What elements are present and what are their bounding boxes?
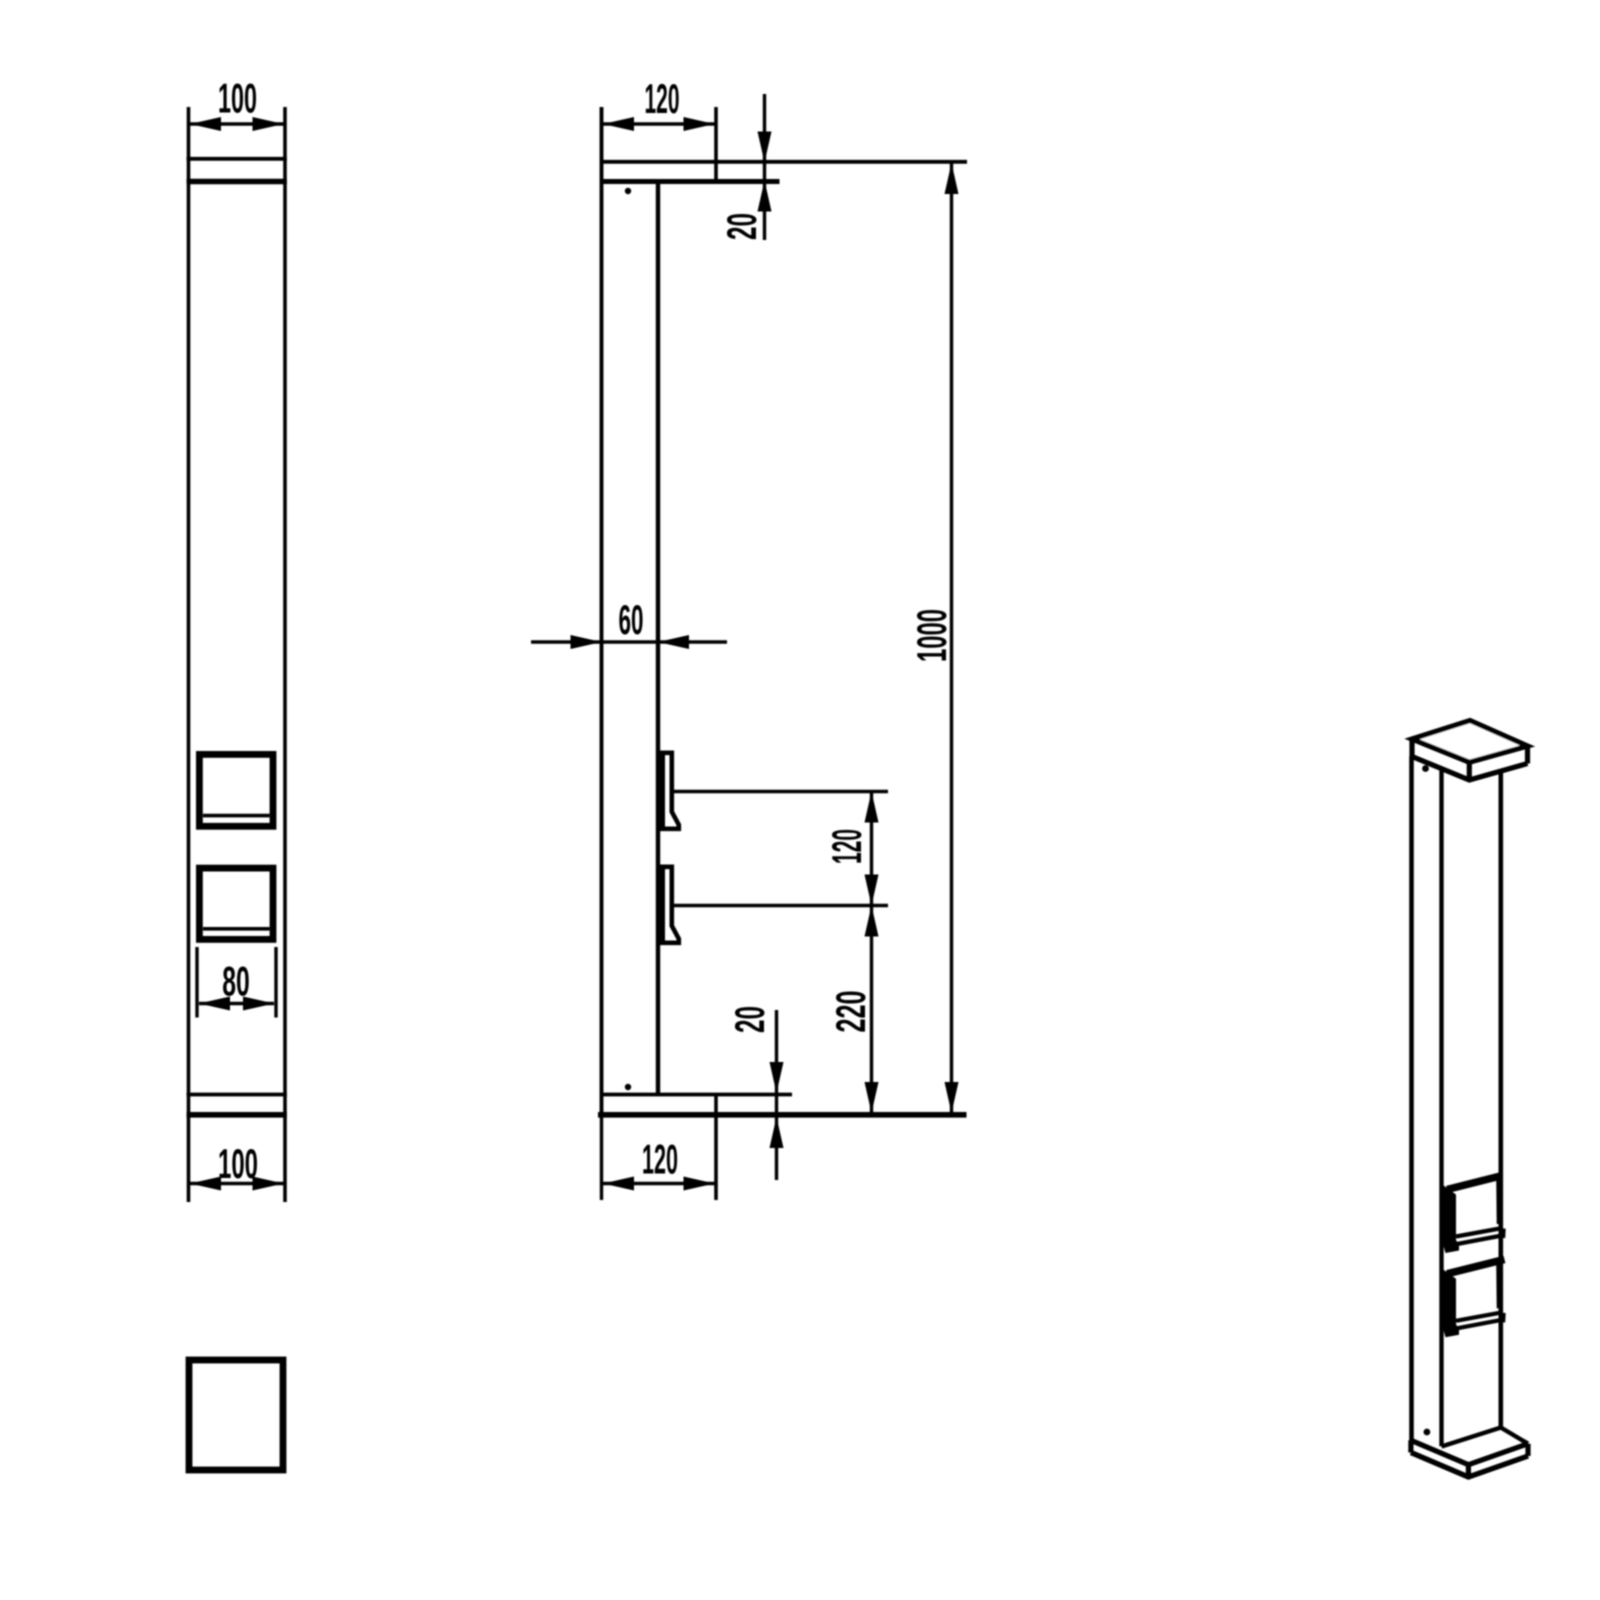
svg-text:60: 60 xyxy=(619,598,644,644)
svg-text:20: 20 xyxy=(719,213,766,240)
svg-text:120: 120 xyxy=(824,829,871,864)
svg-text:100: 100 xyxy=(218,1141,258,1188)
svg-text:100: 100 xyxy=(218,75,257,122)
svg-text:120: 120 xyxy=(644,76,679,123)
svg-text:80: 80 xyxy=(222,959,250,1005)
svg-text:120: 120 xyxy=(642,1137,678,1184)
svg-text:20: 20 xyxy=(727,1006,774,1033)
svg-text:220: 220 xyxy=(829,990,875,1032)
svg-text:1000: 1000 xyxy=(909,609,956,662)
